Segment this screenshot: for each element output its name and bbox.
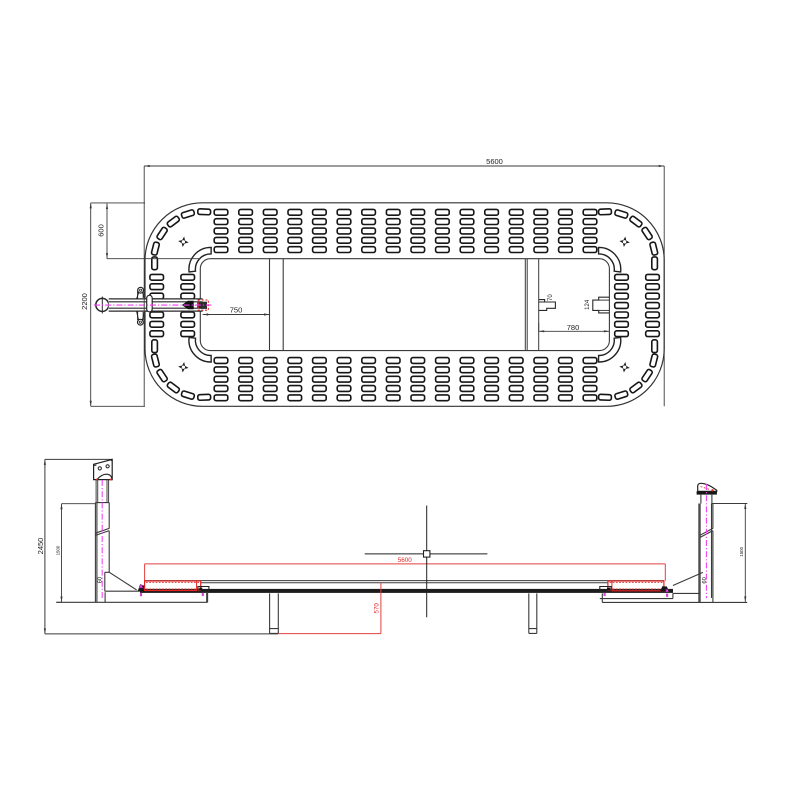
svg-text:2450: 2450 <box>36 538 45 555</box>
svg-text:570: 570 <box>373 603 380 614</box>
svg-text:60: 60 <box>98 577 104 583</box>
svg-text:780: 780 <box>567 323 580 332</box>
svg-text:750: 750 <box>230 305 243 314</box>
svg-text:1500: 1500 <box>739 546 744 556</box>
svg-text:600: 600 <box>97 224 106 237</box>
svg-text:60: 60 <box>702 577 708 583</box>
svg-text:124: 124 <box>585 299 591 310</box>
svg-text:2200: 2200 <box>80 293 89 310</box>
svg-text:70: 70 <box>548 294 554 301</box>
svg-text:1500: 1500 <box>56 545 61 555</box>
svg-text:5600: 5600 <box>398 557 413 564</box>
svg-text:5600: 5600 <box>486 157 503 166</box>
